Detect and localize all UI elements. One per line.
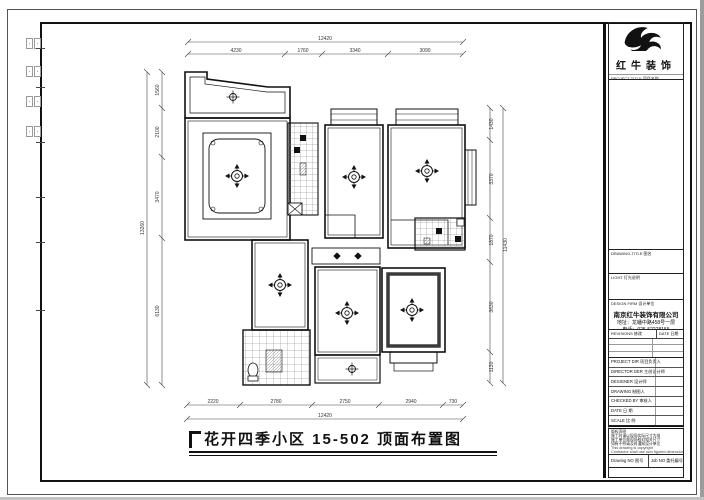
dim-label: 6130 (155, 305, 161, 316)
company-address: 地址：龙蟠中路458号一层 (609, 319, 683, 326)
dim-label: 4230 (230, 48, 241, 54)
drawing-title-field-label: DRAWING-TITLE 图名 (609, 250, 683, 258)
revisions-table: REVISIONS 修改 DATE 日期 (608, 330, 684, 358)
dim-label: 3370 (489, 173, 495, 184)
revisions-label: REVISIONS 修改 (609, 330, 657, 338)
cad-sheet: { "plan": { "title": "花开四季小区 15-502 顶面布置… (0, 0, 704, 500)
ceiling-lamp-symbol (227, 91, 240, 104)
sheet-edge-shadow-right (700, 0, 704, 500)
dim-label: 2940 (405, 399, 416, 405)
margin-ref-box (25, 66, 41, 77)
dim-label: 1430 (489, 118, 495, 129)
margin-ref-box (25, 96, 41, 107)
row-project-dir: PROJECT DIR 项目负责人 (609, 358, 683, 368)
title-underline (189, 451, 497, 456)
drawing-number-row: Drawing NO 图号 Job NO 委托编号 (608, 455, 684, 468)
titleblock-tail (608, 468, 684, 478)
design-firm-label: DESIGN FIRM 设计单位 (609, 300, 683, 308)
spotlight-symbol (354, 252, 361, 259)
dim-label: 1130 (489, 361, 495, 372)
room-balcony-top (185, 72, 290, 118)
dim-label: 2750 (339, 399, 350, 405)
notes-box: 版权声明 施工时请以现场实际尺寸为准 施工单位需现场核对相关尺寸 如有不符请及时… (608, 426, 684, 455)
spotlight-symbol (333, 252, 340, 259)
company-name: 南京红牛装饰有限公司 (609, 309, 683, 319)
drawing-title-block: 花开四季小区 15-502 顶面布置图 (189, 428, 497, 456)
dim-label: 2100 (155, 126, 161, 137)
title-corner-mark (189, 431, 201, 448)
window-bay-east (465, 150, 476, 205)
row-designer: DESIGNER 设计师 (609, 377, 683, 387)
kitchen-tiles-bottom (243, 330, 310, 385)
dim-label: 12420 (318, 413, 332, 419)
dim-label: 1560 (155, 84, 161, 95)
dim-label: 12420 (318, 36, 332, 42)
dim-label: 1870 (489, 234, 495, 245)
light-field: LIGHT 灯光说明 (608, 274, 684, 300)
redbull-logo-icon (617, 23, 675, 51)
dim-label: 1760 (297, 48, 308, 54)
dim-label: 2780 (270, 399, 281, 405)
margin-ref-box (25, 126, 41, 137)
dim-label: 730 (449, 399, 458, 405)
row-director: DIRECTOR DER 主创设计师 (609, 368, 683, 378)
ceiling-fan-symbol (225, 164, 249, 188)
personnel-rows: PROJECT DIR 项目负责人 DIRECTOR DER 主创设计师 DES… (608, 358, 684, 426)
title-block: 红牛装饰 PROJECT-TITLE 项目名称 DRAWING-TITLE 图名… (608, 22, 684, 478)
note-line: Contractor shall use own figured dimensi… (611, 450, 681, 454)
floor-plan-canvas: 12420 4230 1760 3340 3090 2220 2780 2750… (40, 22, 604, 478)
row-drawing: DRAWING 制图人 (609, 387, 683, 397)
drawing-title-field: DRAWING-TITLE 图名 (608, 250, 684, 274)
light-field-label: LIGHT 灯光说明 (609, 274, 683, 282)
soffit-band (312, 248, 380, 264)
hallway-tiles (288, 123, 318, 215)
row-checked-by: CHECKED BY 审核人 (609, 397, 683, 407)
dim-label: 3630 (489, 301, 495, 312)
dim-label: 3340 (349, 48, 360, 54)
shaft-box (288, 203, 302, 215)
ceiling-fan-symbol (342, 165, 366, 189)
dim-label: 11430 (503, 238, 509, 252)
dim-label: 3090 (419, 48, 430, 54)
dim-label: 13260 (140, 221, 146, 235)
drawing-title: 花开四季小区 15-502 顶面布置图 (204, 428, 462, 449)
logo-box: 红牛装饰 PROJECT-TITLE 项目名称 (608, 22, 684, 80)
bathroom-tiles-right (415, 218, 465, 250)
ceiling-fan-symbol (335, 301, 359, 325)
ceiling-fan-symbol (400, 298, 424, 322)
drawing-no-label: Drawing NO 图号 (609, 455, 649, 467)
ceiling-fan-symbol (268, 273, 292, 297)
design-firm-field: DESIGN FIRM 设计单位 南京红牛装饰有限公司 地址：龙蟠中路458号一… (608, 300, 684, 330)
brand-name: 红牛装饰 (609, 57, 683, 72)
dim-label: 2220 (207, 399, 218, 405)
ceiling-lamp-symbol (346, 363, 359, 376)
row-scale: SCALE 比 例 (609, 416, 683, 425)
plan-walls (185, 72, 476, 385)
room-bedroom-bottom-right (382, 268, 445, 371)
project-name-box (608, 80, 684, 250)
dim-label: 3470 (155, 191, 161, 202)
date-col-label: DATE 日期 (657, 330, 683, 338)
job-no-label: Job NO 委托编号 (649, 455, 683, 467)
revision-row (609, 352, 683, 357)
row-date: DATE 日 期 (609, 407, 683, 417)
ceiling-fan-symbol (415, 159, 439, 183)
